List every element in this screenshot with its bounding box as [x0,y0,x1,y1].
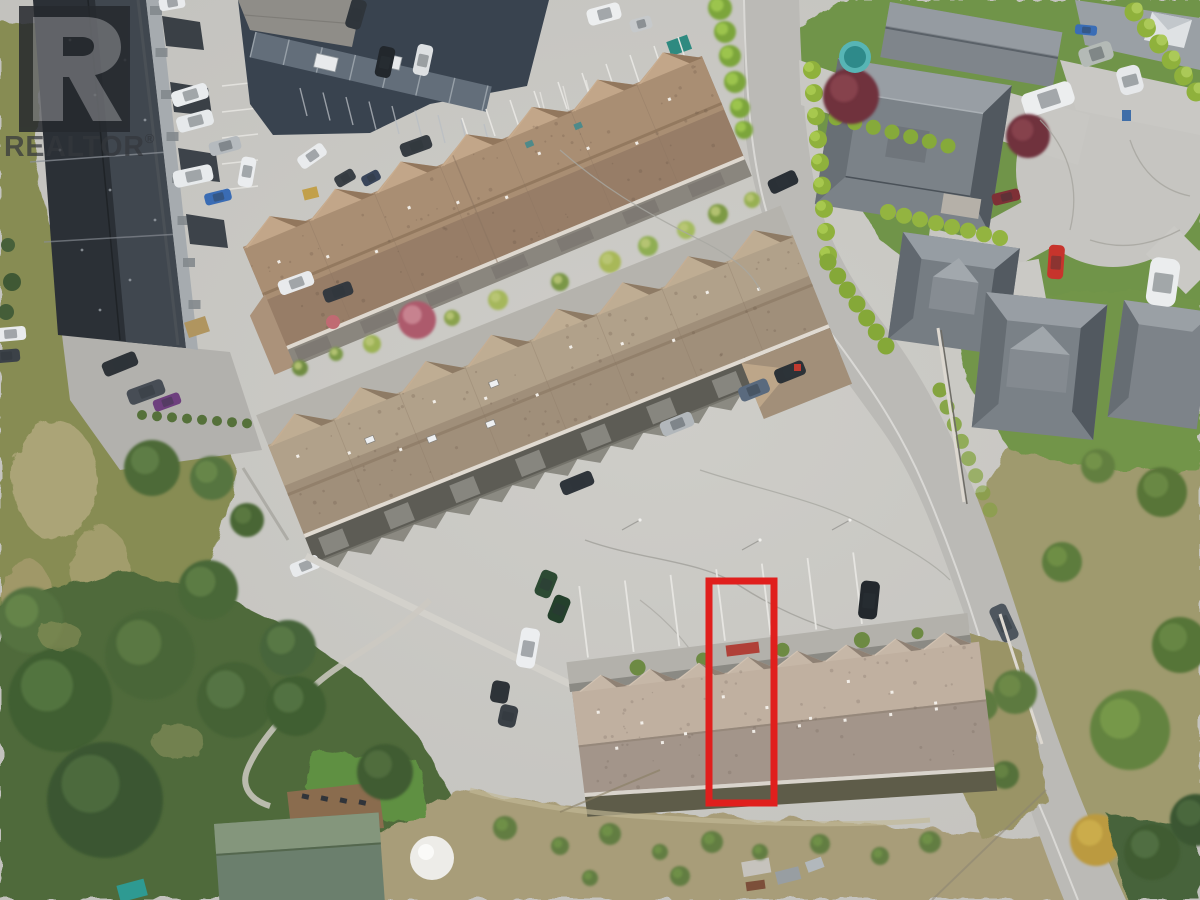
svg-text:REALTOR®: REALTOR® [4,131,155,163]
